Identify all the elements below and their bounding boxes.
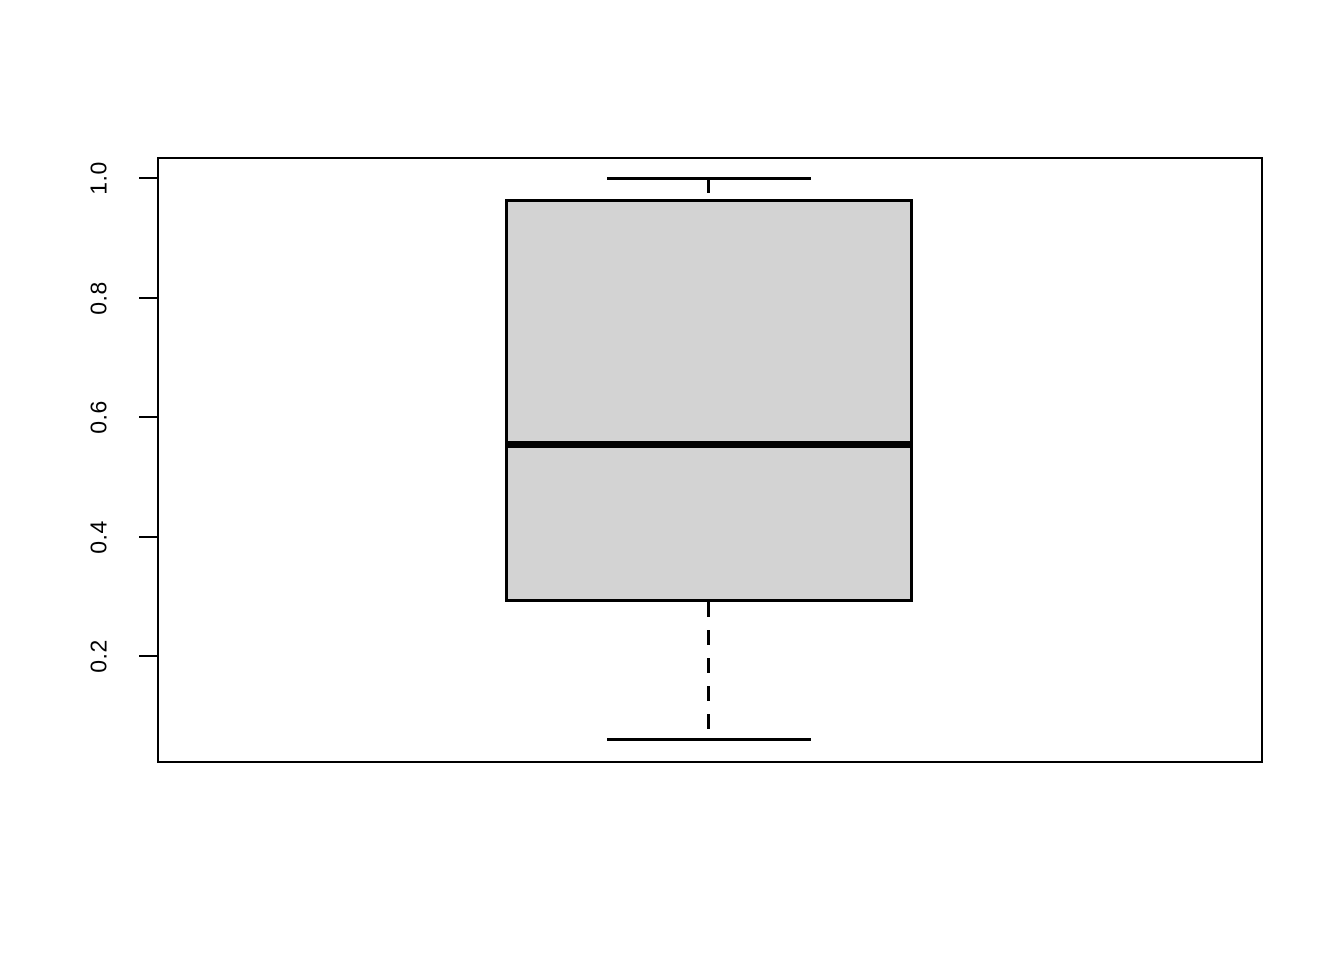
y-axis-tick	[139, 177, 157, 179]
lower-whisker-cap	[607, 738, 811, 741]
y-axis-tick-label: 1.0	[86, 162, 113, 195]
y-axis-tick	[139, 297, 157, 299]
y-axis-tick	[139, 416, 157, 418]
y-axis-tick-label: 0.2	[86, 639, 113, 672]
upper-whisker	[707, 178, 710, 199]
y-axis-tick-label: 0.6	[86, 401, 113, 434]
median-line	[505, 441, 913, 448]
iqr-box	[505, 199, 913, 602]
y-axis-tick-label: 0.8	[86, 281, 113, 314]
y-axis-tick-label: 0.4	[86, 520, 113, 553]
upper-whisker-cap	[607, 177, 811, 180]
boxplot-figure: 0.20.40.60.81.0	[0, 0, 1344, 960]
lower-whisker	[707, 602, 710, 739]
y-axis-tick	[139, 536, 157, 538]
y-axis-tick	[139, 655, 157, 657]
